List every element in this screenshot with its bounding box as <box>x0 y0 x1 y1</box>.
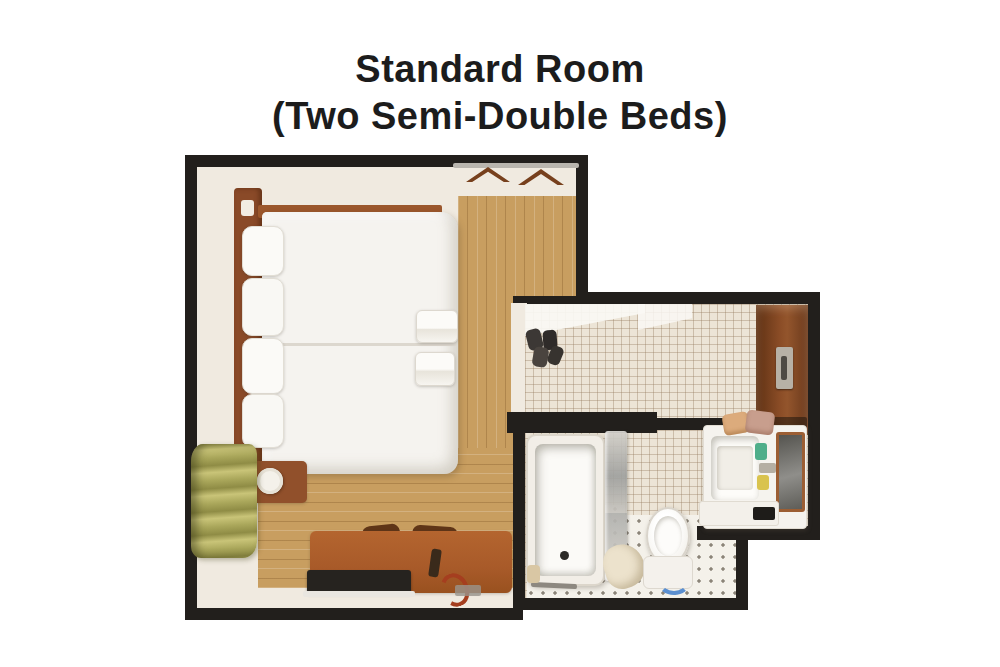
wood-floor-top-right <box>458 196 576 296</box>
page-title: Standard Room (Two Semi-Double Beds) <box>0 46 1000 140</box>
pillow <box>242 338 284 394</box>
title-line-2: (Two Semi-Double Beds) <box>0 93 1000 140</box>
bathtub-drain <box>560 551 569 560</box>
floor-plan-page: Standard Room (Two Semi-Double Beds) <box>0 0 1000 667</box>
pillow <box>242 226 284 276</box>
mirror-glass <box>779 435 802 509</box>
vanity-outlet <box>753 507 775 520</box>
tv <box>307 570 411 593</box>
headboard-cutout <box>241 200 254 216</box>
folded-towel <box>415 352 455 386</box>
sink-faucet <box>759 463 776 473</box>
washbasin-inner <box>717 446 753 490</box>
table-lamp <box>257 468 283 494</box>
pillow <box>242 394 284 448</box>
bath-item <box>527 565 540 583</box>
toilet-seat <box>654 516 682 556</box>
rolled-towel <box>745 409 776 435</box>
floor-clutter <box>455 585 481 596</box>
bidet-control <box>658 569 690 595</box>
amenity-bottle-yellow <box>757 475 769 490</box>
mirror-frame <box>776 432 805 512</box>
title-line-1: Standard Room <box>0 46 1000 93</box>
wood-floor-right-strip <box>458 296 513 470</box>
door-handle <box>781 356 787 380</box>
wall-bathroom-divider <box>507 412 657 433</box>
amenity-bottle-green <box>755 443 767 460</box>
bed-seam <box>264 343 456 346</box>
tv-stand <box>303 591 415 597</box>
bathroom-wall-tiles <box>625 430 700 515</box>
pillow <box>242 278 284 336</box>
folded-towel <box>416 310 458 343</box>
clothes-rail <box>453 163 579 168</box>
curtain <box>191 444 257 558</box>
